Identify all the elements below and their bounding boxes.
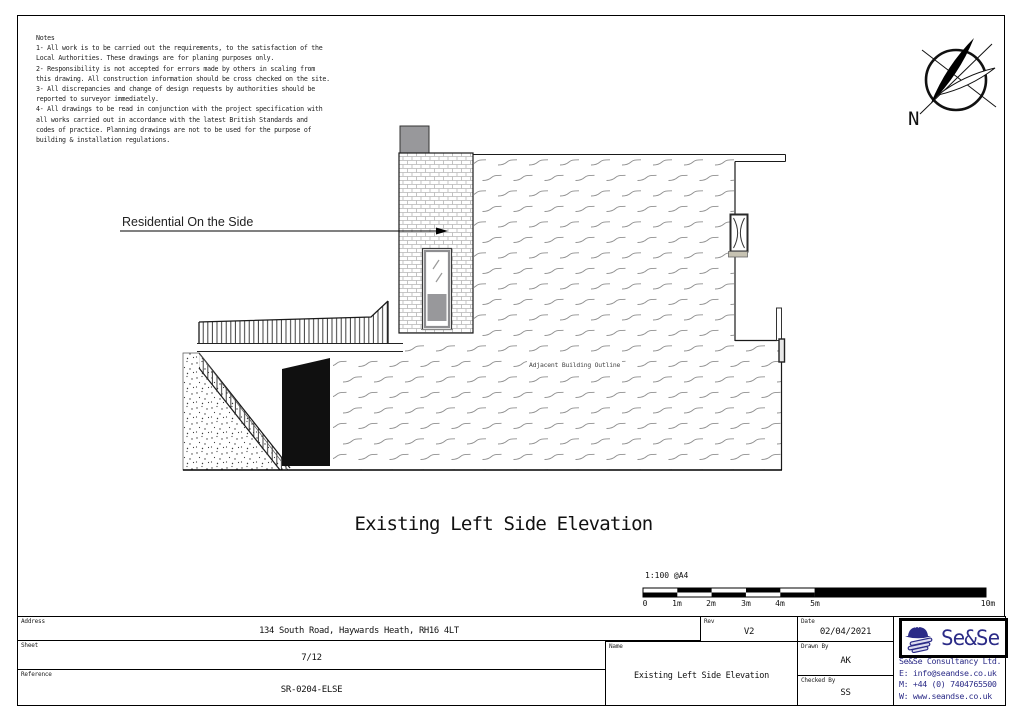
stucco-wall-upper [474,156,734,341]
company-logo-text: Se&Se [941,626,999,650]
titleblock-rev-cell: Rev V2 [700,616,798,642]
door-panel [428,294,447,321]
scale-tick-label: 4m [775,599,785,608]
scale-tick-label: 1m [672,599,682,608]
company-contact-block: Se&Se Consultancy Ltd. E: info@seandse.c… [899,656,1007,702]
drawing-title: Existing Left Side Elevation [0,513,1007,535]
company-phone: M: +44 (0) 7404765500 [899,679,1007,691]
company-email: E: info@seandse.co.uk [899,668,1007,680]
chimney [400,126,429,153]
parapet-coping [735,155,786,162]
scale-tick-label: 0 [643,599,648,608]
sheet-value: 7/12 [18,641,605,669]
company-website: W: www.seandse.co.uk [899,691,1007,703]
scale-bar [643,588,986,597]
titleblock-date-cell: Date 02/04/2021 [797,616,894,642]
checked-by-value: SS [798,676,893,705]
ground-bank [183,353,288,470]
drawn-by-value: AK [798,642,893,675]
titleblock-address-cell: Address 134 South Road, Haywards Heath, … [17,616,701,641]
company-logo: Se&Se [899,618,1008,658]
scale-tick-label: 2m [706,599,716,608]
hard-hat-icon [902,623,940,653]
name-value: Existing Left Side Elevation [606,642,797,705]
window-sill [729,252,748,258]
downpipe [779,339,785,362]
walkway-deck [197,343,403,352]
titleblock-reference-cell: Reference SR-0204-ELSE [17,669,606,706]
scale-tick-label: 3m [741,599,751,608]
address-value: 134 South Road, Haywards Heath, RH16 4LT [18,617,700,640]
company-name: Se&Se Consultancy Ltd. [899,656,1007,668]
side-window [729,215,748,258]
titleblock-name-cell: Name Existing Left Side Elevation [605,641,798,706]
reference-value: SR-0204-ELSE [18,670,605,705]
wall-return-post [777,308,782,341]
adjacent-building-label: Adjacent Building Outline [527,361,622,369]
scale-ratio-label: 1:100 @A4 [645,571,688,580]
planning-drawing-sheet: { "notes": { "title": "Notes", "lines": … [0,0,1024,724]
date-value: 02/04/2021 [798,617,893,641]
titleblock-sheet-cell: Sheet 7/12 [17,640,606,670]
walkway-railing [199,301,388,343]
stair-silhouette [282,358,330,466]
rev-value: V2 [701,617,797,641]
scale-tick-label: 5m [810,599,820,608]
pipes-icon [908,638,932,653]
titleblock-drawnby-cell: Drawn By AK [797,641,894,676]
scale-tick-label: 10m [981,599,995,608]
titleblock-checkedby-cell: Checked By SS [797,675,894,706]
residential-annotation: Residential On the Side [122,215,253,229]
door [421,249,453,330]
